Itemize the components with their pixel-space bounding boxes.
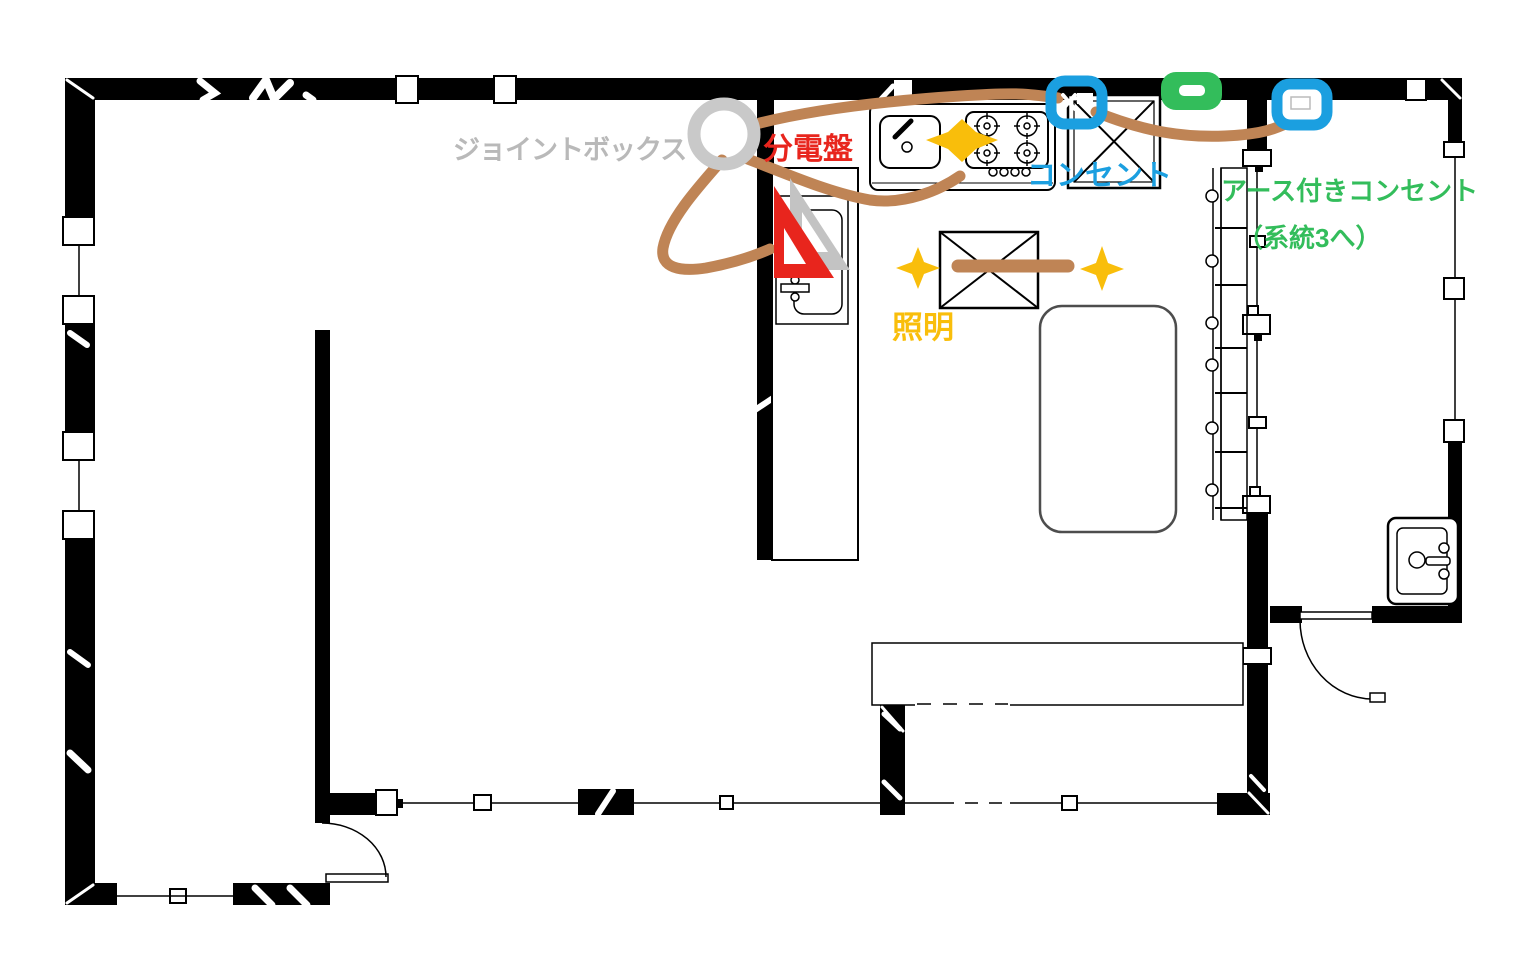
grounded-outlet-note: （系統3へ） bbox=[1237, 225, 1381, 251]
door-bottom-left bbox=[322, 823, 388, 882]
washbasin bbox=[1388, 518, 1458, 604]
distribution-board-label: 分電盤 bbox=[763, 135, 853, 165]
outlet-marker-2 bbox=[1277, 84, 1327, 125]
cabinet-hinges bbox=[1206, 190, 1218, 496]
outlet-label: コンセント bbox=[1027, 162, 1172, 191]
sparkle-right-icon bbox=[1080, 246, 1124, 291]
grounded-outlet-marker bbox=[1161, 72, 1222, 110]
dining-counter-dash bbox=[915, 700, 1010, 709]
door-washroom bbox=[1300, 612, 1385, 702]
joint-box-label: ジョイントボックス bbox=[453, 137, 686, 164]
tall-cabinet bbox=[1206, 168, 1247, 520]
sparkle-left-icon bbox=[896, 247, 940, 289]
island-counter bbox=[1040, 306, 1176, 532]
dining-counter bbox=[872, 643, 1243, 705]
lighting-label: 照明 bbox=[892, 312, 954, 343]
floor-plan-canvas: ジョイントボックス 分電盤 コンセント アース付きコンセント （系統3へ） 照明 bbox=[0, 0, 1536, 977]
wire-jointbox-to-distribution-board bbox=[663, 160, 770, 269]
grounded-outlet-label: アース付きコンセント bbox=[1221, 178, 1478, 204]
